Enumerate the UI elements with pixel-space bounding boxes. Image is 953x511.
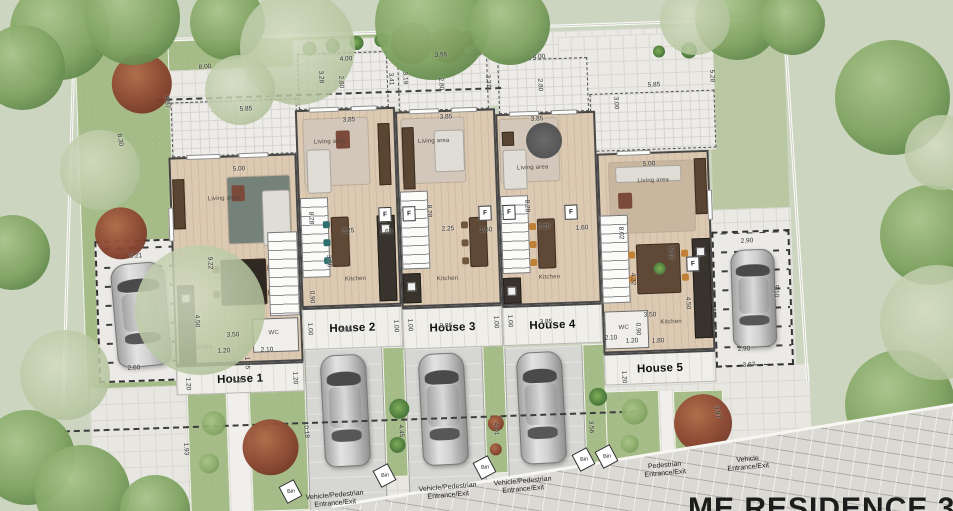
bin-label: Bin xyxy=(286,488,294,495)
bin-label: Bin xyxy=(480,464,488,471)
bin-marker: Bin xyxy=(473,455,497,480)
bin-label: Bin xyxy=(602,453,610,460)
bin-marker: Bin xyxy=(595,444,619,469)
bin-marker: Bin xyxy=(572,447,596,472)
bin-layer: BinBinBinBinBin xyxy=(0,0,953,511)
bin-marker: Bin xyxy=(373,463,397,488)
bin-label: Bin xyxy=(380,472,388,479)
site-plan: Living area Kitchen WC House 1 Living ar… xyxy=(0,0,953,511)
bin-label: Bin xyxy=(579,456,587,463)
